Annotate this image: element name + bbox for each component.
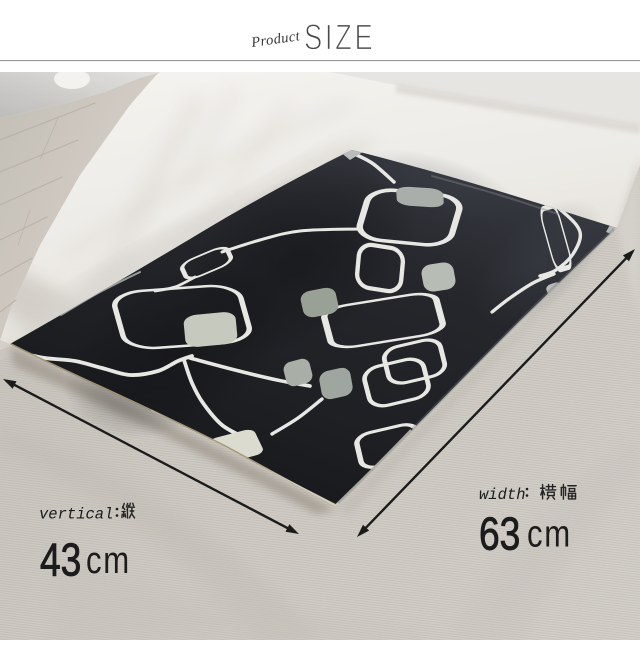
svg-text:vertical: vertical (39, 506, 113, 524)
svg-text:cm: cm (527, 514, 572, 556)
svg-text:SIZE: SIZE (304, 17, 375, 58)
svg-text:43: 43 (40, 534, 81, 586)
svg-text:cm: cm (86, 540, 131, 582)
svg-text:63: 63 (479, 508, 520, 560)
svg-text:width: width (479, 486, 526, 504)
